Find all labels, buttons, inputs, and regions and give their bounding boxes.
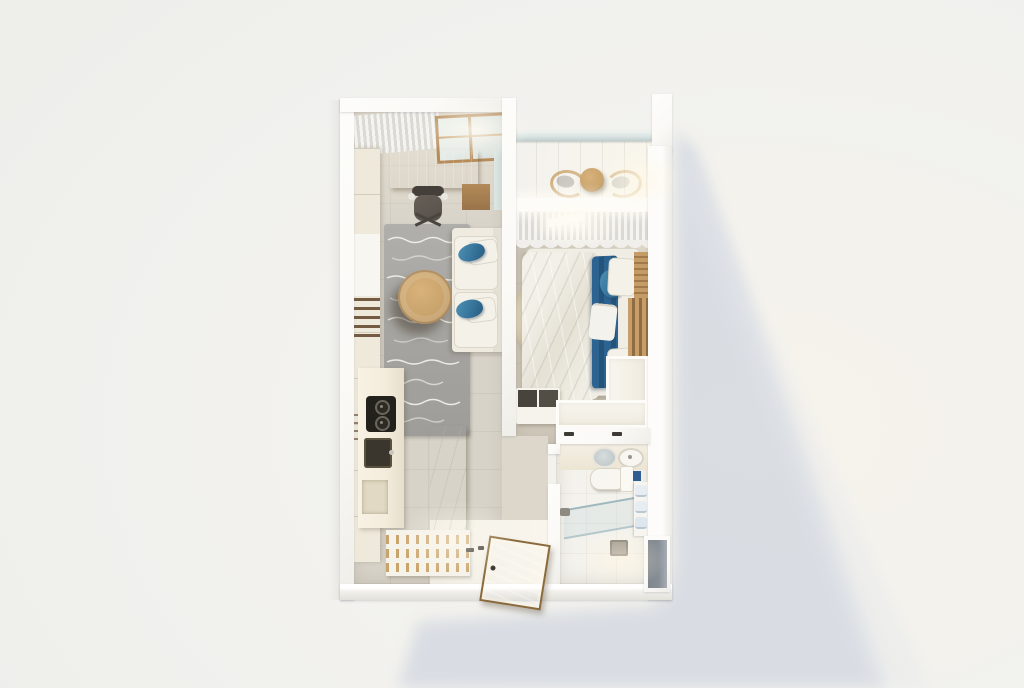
office-balcony-glass <box>494 150 502 210</box>
bathroom-vanity <box>560 444 648 470</box>
cooktop-burner-2 <box>375 416 390 431</box>
rug-wave <box>387 360 459 364</box>
glass-railing <box>514 131 652 141</box>
towel-roll-3 <box>635 517 647 529</box>
wall-right <box>648 146 672 600</box>
wall-bathroom-left-b <box>548 484 560 584</box>
desk <box>390 150 478 188</box>
dresser-top-panel <box>518 390 537 407</box>
kitchen-sink <box>364 438 392 468</box>
wall-bottom <box>340 584 672 600</box>
curtain-scallop-edge <box>516 240 648 248</box>
utility-notch <box>648 540 667 588</box>
wall-bedroom-bathroom <box>556 428 650 444</box>
shoe-rack <box>386 530 470 576</box>
towel-roll <box>635 485 647 497</box>
coffee-table <box>398 270 452 324</box>
toilet-tank <box>620 466 634 492</box>
towel-roll-2 <box>635 501 647 513</box>
office-chair-armrest <box>408 193 415 200</box>
bedroom-curtains <box>516 212 648 242</box>
door-hinge-mark <box>466 548 474 552</box>
wall-slat-panel <box>628 298 648 356</box>
door-hinge-mark-2 <box>478 546 484 550</box>
rug-wave <box>394 338 448 342</box>
shower-drain <box>610 540 628 556</box>
kitchen-counter <box>358 368 404 528</box>
wall-pillar-topright <box>652 94 672 152</box>
shower-head <box>560 508 570 516</box>
sink-basin <box>618 448 644 468</box>
rug-wave <box>388 238 460 243</box>
bedroom-threshold-mark-2 <box>612 432 622 436</box>
sofa <box>452 228 506 352</box>
balcony-table <box>580 168 604 192</box>
wall-bathroom-left-a <box>548 444 560 454</box>
towel-shelf <box>634 482 648 536</box>
kitchen-island <box>430 426 466 534</box>
window-mullion-2 <box>439 133 507 139</box>
bedroom-threshold-mark <box>564 432 574 436</box>
desk-return-shelf <box>462 184 490 210</box>
wall-left <box>340 98 354 600</box>
closet-horizontal <box>556 400 648 428</box>
folded-towel-on-bed <box>588 303 618 342</box>
office-chair-armrest-2 <box>441 193 448 200</box>
cooktop-burner <box>375 400 390 415</box>
bed-pillow <box>607 257 637 296</box>
bedroom-window-lightbar <box>516 198 648 211</box>
office-chair <box>408 186 448 234</box>
floor-plan-scene <box>0 0 1024 688</box>
duvet <box>522 252 600 400</box>
basin-drain <box>628 455 632 459</box>
counter-shelf <box>362 480 388 514</box>
cooktop <box>366 396 396 432</box>
faucet <box>389 450 394 455</box>
wall-top <box>340 98 514 112</box>
wall-middle <box>502 98 516 436</box>
flush-panel-blue <box>633 471 641 481</box>
round-mirror <box>592 447 617 468</box>
utility-notch-frame <box>644 536 670 592</box>
dresser <box>516 388 560 424</box>
